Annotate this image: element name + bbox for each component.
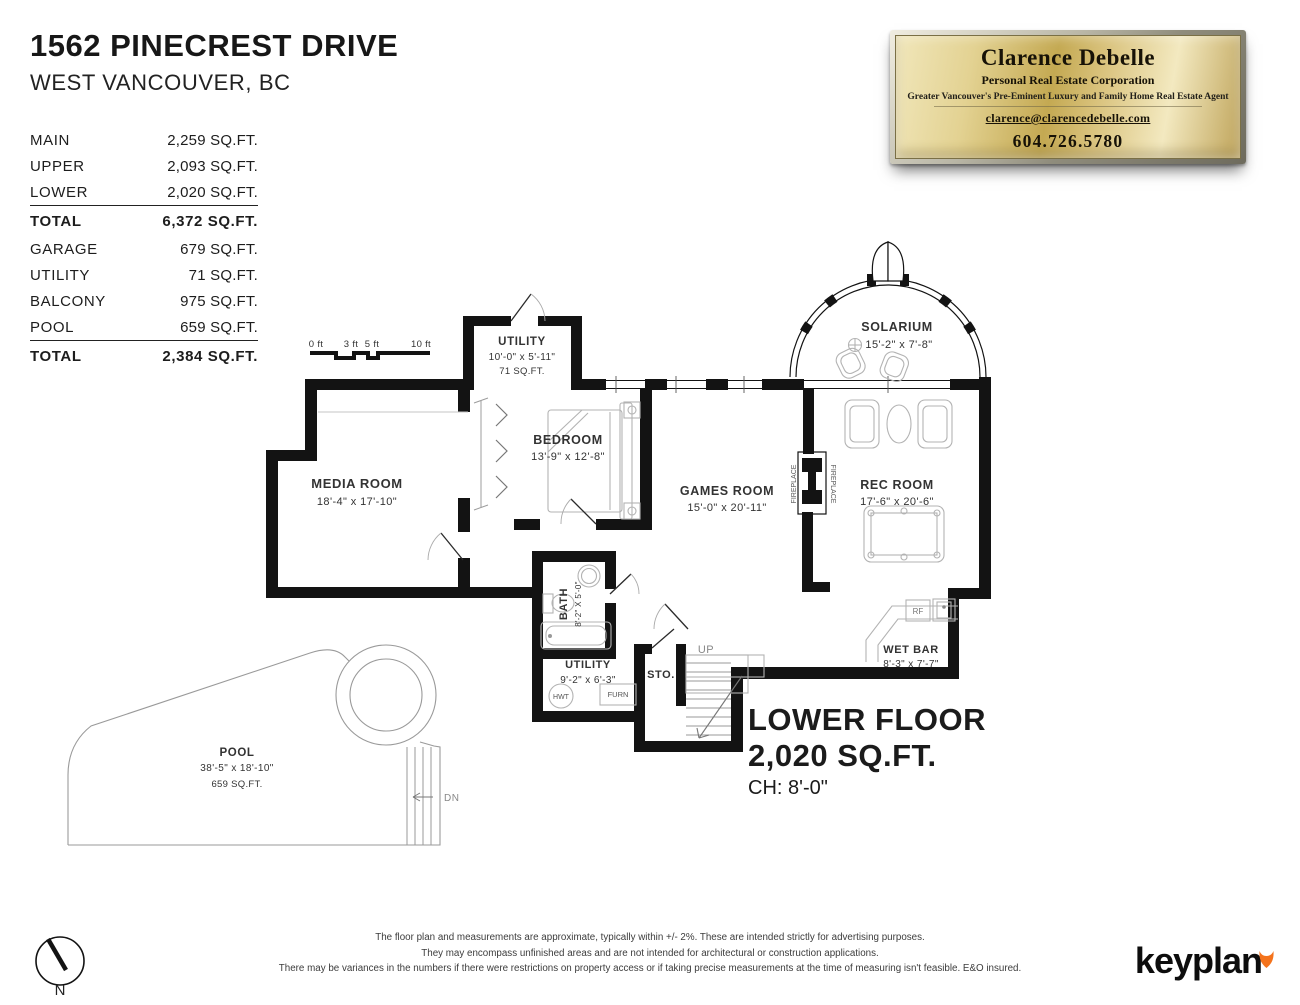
room-storage: STO. xyxy=(647,629,675,681)
room-dims-bedroom: 13'-9" x 12'-8" xyxy=(531,451,605,463)
keyplan-wordmark: keyplan xyxy=(1135,940,1262,981)
room-label-pool: POOL xyxy=(220,747,255,759)
room-label-bedroom: BEDROOM xyxy=(533,433,602,447)
pool-steps xyxy=(407,747,431,845)
floor-title-line2: 2,020 SQ.FT. xyxy=(748,738,937,773)
fireplace: FIREPLACE FIREPLACE xyxy=(791,452,836,514)
room-label-utility-top: UTILITY xyxy=(498,336,546,348)
room-area-utility-top: 71 SQ.FT. xyxy=(499,366,544,377)
room-dims-rec: 17'-6" x 20'-6" xyxy=(860,496,934,508)
scale-bar: 0 ft 3 ft 5 ft 10 ft xyxy=(309,339,431,358)
room-bedroom: BEDROOM 13'-9" x 12'-8" xyxy=(531,402,640,524)
disclaimer-line: They may encompass unfinished areas and … xyxy=(0,946,1300,962)
room-bath: BATH 8'-2" X 5'-0" xyxy=(541,565,639,649)
wet-bar: RF WET BAR 8'-3" x 7'-7" xyxy=(866,599,958,670)
room-dims-utility-top: 10'-0" x 5'-11" xyxy=(489,352,556,363)
fireplace-label-left: FIREPLACE xyxy=(791,464,798,503)
room-utility-top: UTILITY 10'-0" x 5'-11" 71 SQ.FT. xyxy=(489,294,556,377)
room-area-pool: 659 SQ.FT. xyxy=(211,779,262,790)
room-label-rec: REC ROOM xyxy=(860,478,934,492)
solarium: SOLARIUM 15'-2" x 7'-8" xyxy=(790,242,986,384)
floor-title-line3: CH: 8'-0" xyxy=(748,777,828,799)
room-dims-solarium: 15'-2" x 7'-8" xyxy=(865,339,932,351)
disclaimer-line: There may be variances in the numbers if… xyxy=(0,961,1300,977)
room-dims-media: 18'-4" x 17'-10" xyxy=(317,496,397,508)
room-dims-wetbar: 8'-3" x 7'-7" xyxy=(883,659,939,670)
dn-label: DN xyxy=(444,793,459,804)
north-label: N xyxy=(50,982,70,999)
room-label-wetbar: WET BAR xyxy=(883,644,939,656)
room-dims-pool: 38'-5" x 18'-10" xyxy=(200,763,274,774)
hot-tub xyxy=(336,645,436,745)
french-door-right xyxy=(888,242,904,281)
disclaimer-line: The floor plan and measurements are appr… xyxy=(0,930,1300,946)
room-dims-games: 15'-0" x 20'-11" xyxy=(687,502,766,514)
scale-label-3: 3 ft xyxy=(344,339,358,350)
room-label-bath: BATH xyxy=(558,588,570,620)
floor-plan-page: 1562 PINECREST DRIVE WEST VANCOUVER, BC … xyxy=(0,0,1300,1005)
scale-label-0: 0 ft xyxy=(309,339,323,350)
scale-label-5: 5 ft xyxy=(365,339,379,350)
floor-title: LOWER FLOOR 2,020 SQ.FT. CH: 8'-0" xyxy=(748,702,986,799)
rf-label: RF xyxy=(913,607,924,616)
disclaimer: The floor plan and measurements are appr… xyxy=(0,930,1300,977)
room-games: GAMES ROOM 15'-0" x 20'-11" xyxy=(654,484,774,629)
rec-seating xyxy=(845,400,952,448)
room-utility-lower: UTILITY 9'-2" x 6'-3" HWT FURN xyxy=(549,659,636,708)
room-dims-bath: 8'-2" X 5'-0" xyxy=(574,581,583,627)
ceiling-light-icon xyxy=(849,339,862,352)
pool-table xyxy=(864,506,944,562)
hwt-label: HWT xyxy=(553,694,570,701)
french-door-left xyxy=(872,242,888,281)
pool: DN POOL 38'-5" x 18'-10" 659 SQ.FT. xyxy=(68,645,459,845)
solarium-chairs xyxy=(834,346,911,384)
floor-title-line1: LOWER FLOOR xyxy=(748,702,986,737)
closet xyxy=(474,398,507,510)
floor-plan-drawing: 0 ft 3 ft 5 ft 10 ft xyxy=(0,0,1300,1005)
furn-label: FURN xyxy=(608,690,629,699)
room-label-solarium: SOLARIUM xyxy=(861,320,932,334)
room-label-utility-lower: UTILITY xyxy=(565,659,611,671)
keyplan-logo: keyplan xyxy=(1135,940,1262,982)
room-label-media: MEDIA ROOM xyxy=(311,476,402,491)
keyplan-fox-icon xyxy=(1258,936,1275,978)
room-label-storage: STO. xyxy=(647,669,675,681)
up-label: UP xyxy=(698,644,714,656)
room-media: MEDIA ROOM 18'-4" x 17'-10" xyxy=(311,412,468,560)
scale-label-10: 10 ft xyxy=(411,339,431,350)
room-rec: REC ROOM 17'-6" x 20'-6" xyxy=(845,400,952,562)
room-label-games: GAMES ROOM xyxy=(680,484,774,498)
fireplace-label-right: FIREPLACE xyxy=(829,465,836,504)
